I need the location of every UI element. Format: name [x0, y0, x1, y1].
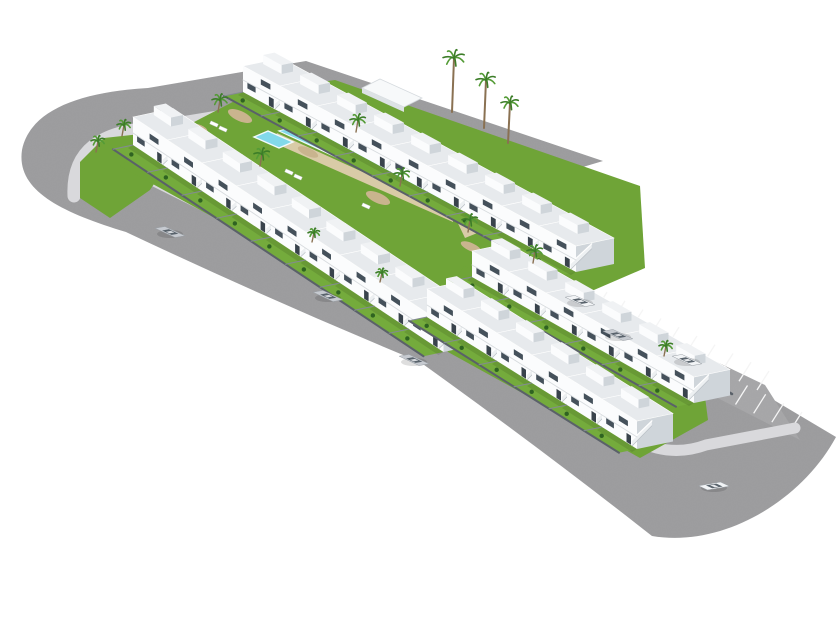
- bush: [460, 346, 464, 350]
- bush: [530, 390, 534, 394]
- bush: [618, 367, 622, 371]
- bush: [233, 221, 237, 225]
- bush: [389, 178, 393, 182]
- bush: [425, 324, 429, 328]
- bush: [315, 138, 319, 142]
- bush: [164, 175, 168, 179]
- bush: [507, 304, 511, 308]
- bush: [655, 388, 659, 392]
- bush: [336, 290, 340, 294]
- bush: [600, 434, 604, 438]
- bush: [241, 98, 245, 102]
- bush: [278, 118, 282, 122]
- bush: [495, 368, 499, 372]
- bush: [198, 198, 202, 202]
- bush: [426, 198, 430, 202]
- bush: [371, 313, 375, 317]
- scene-svg: [0, 0, 840, 630]
- bush: [267, 244, 271, 248]
- architectural-render: [0, 0, 840, 630]
- bush: [352, 158, 356, 162]
- palm-tree: [443, 50, 464, 112]
- bush: [581, 346, 585, 350]
- bush: [544, 325, 548, 329]
- bush: [405, 336, 409, 340]
- bush: [565, 412, 569, 416]
- bush: [302, 267, 306, 271]
- bush: [129, 152, 133, 156]
